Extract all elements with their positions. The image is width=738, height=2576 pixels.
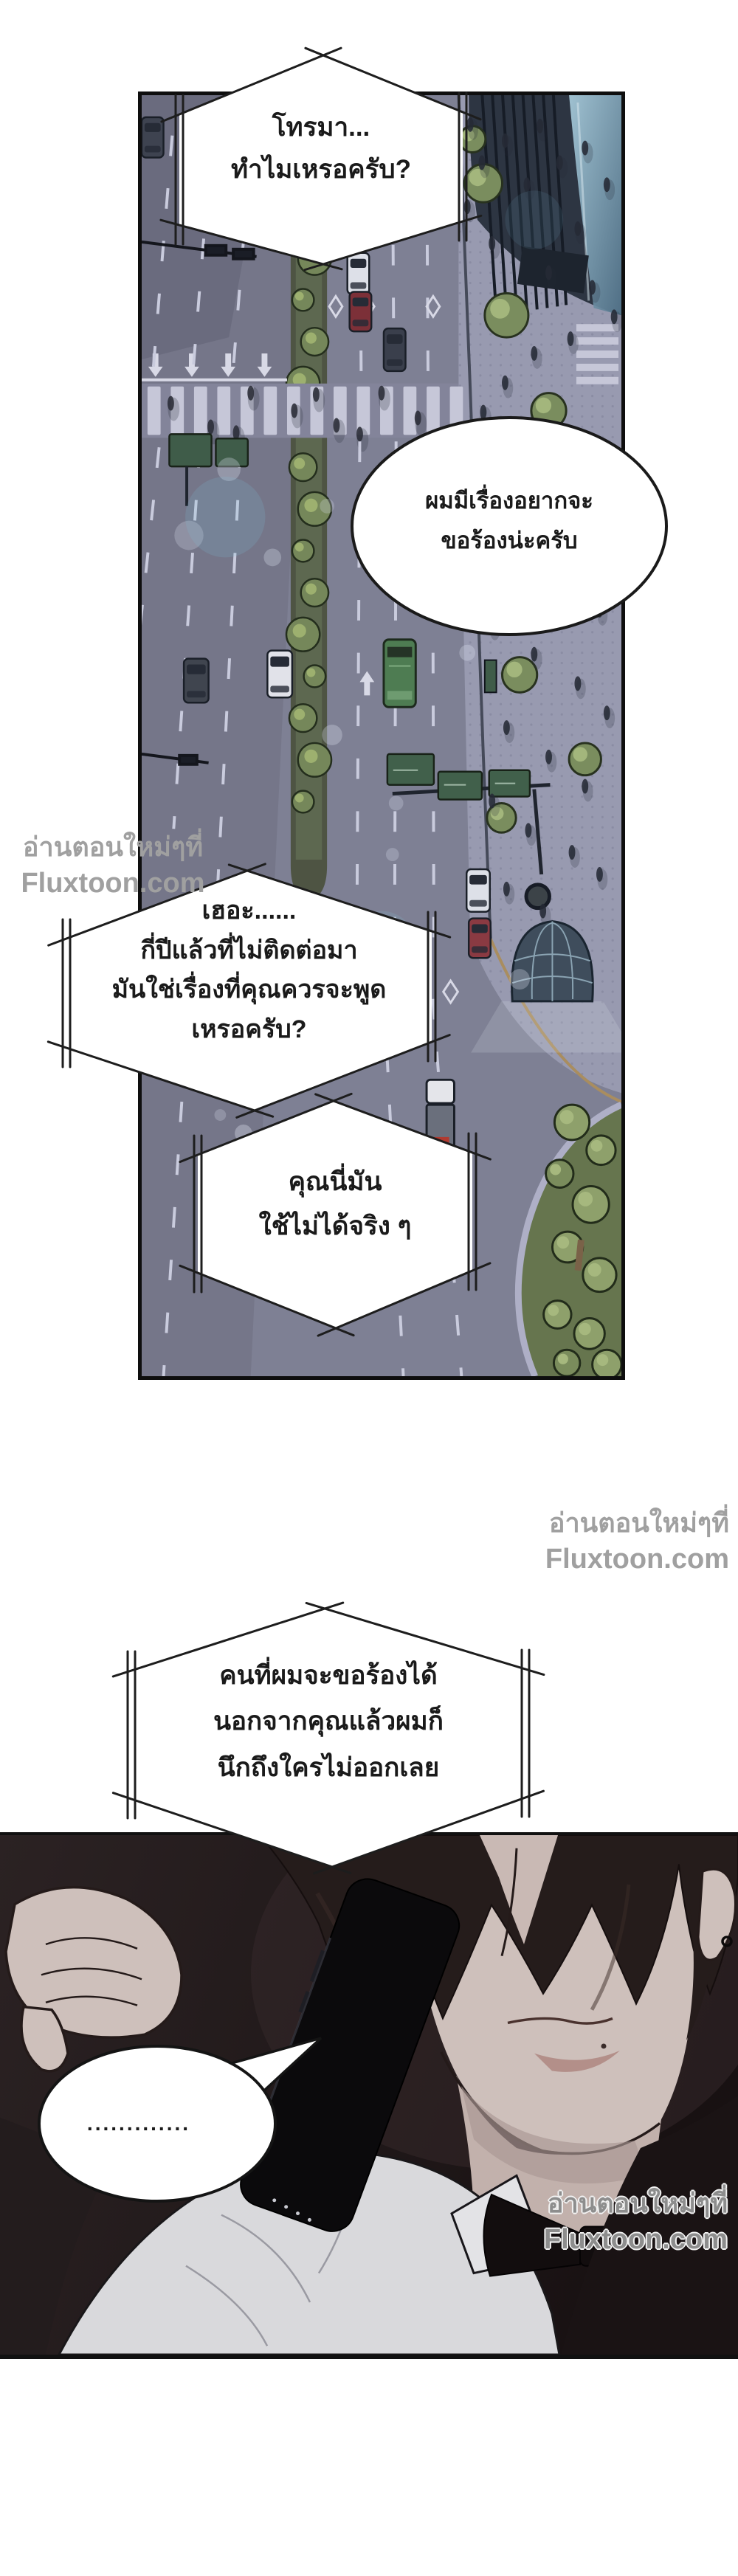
watermark-site-url: Fluxtoon.com (506, 2222, 728, 2258)
watermark-text: อ่านตอนใหม่ๆที่ (6, 829, 220, 866)
speech-bubble-1-text: โทรมา... ทำไมเหรอครับ? (179, 107, 463, 190)
speech-bubble-5-text: คนที่ผมจะขอร้องได้ นอกจากคุณแล้วผมก็ นึก… (131, 1653, 525, 1791)
watermark-text: อ่านตอนใหม่ๆที่ (506, 2186, 728, 2222)
comic-page: โทรมา... ทำไมเหรอครับ? ผมมีเรื่องอยากจะ … (0, 0, 738, 2576)
watermark-middle: อ่านตอนใหม่ๆที่ Fluxtoon.com (508, 1505, 729, 1578)
speech-bubble-6-text: ............. (46, 2109, 231, 2138)
watermark-bottom: อ่านตอนใหม่ๆที่ Fluxtoon.com (506, 2186, 728, 2258)
speech-bubble-2-text: ผมมีเรื่องอยากจะ ขอร้องน่ะครับ (369, 481, 649, 562)
speech-bubble-3-text: เฮอะ...... กี่ปีแล้วที่ไม่ติดต่อมา มันใช… (66, 891, 432, 1050)
watermark-site-url: Fluxtoon.com (508, 1541, 729, 1578)
watermark-top: อ่านตอนใหม่ๆที่ Fluxtoon.com (6, 829, 220, 902)
speech-bubble-4-text: คุณนี่มัน ใช้ไม่ได้จริง ๆ (198, 1160, 472, 1248)
watermark-site-url: Fluxtoon.com (6, 866, 220, 902)
watermark-text: อ่านตอนใหม่ๆที่ (508, 1505, 729, 1541)
